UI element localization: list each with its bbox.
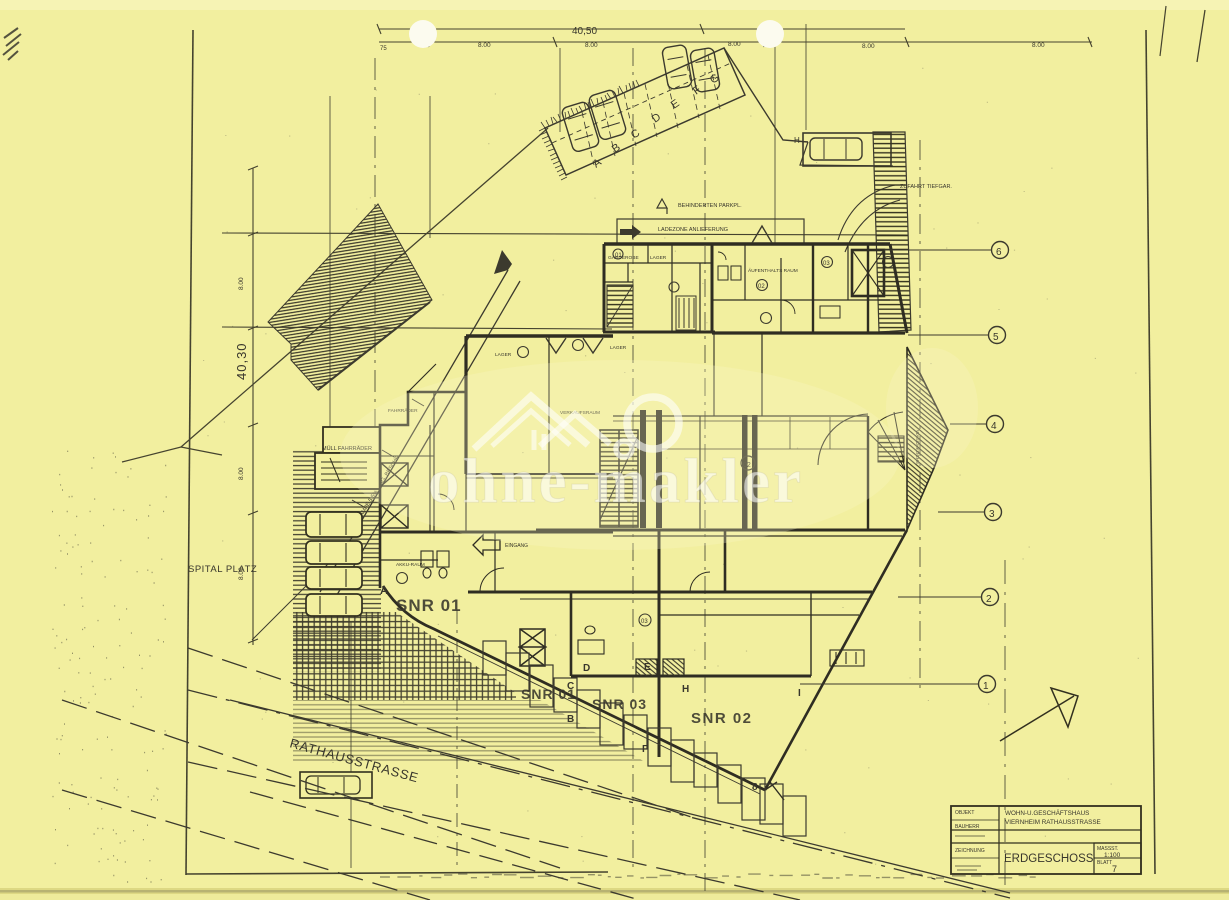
svg-text:SNR 02: SNR 02 [691, 710, 753, 727]
svg-text:8.00: 8.00 [1032, 42, 1045, 49]
svg-text:BLATT: BLATT [1097, 860, 1112, 866]
svg-text:I: I [798, 688, 801, 699]
svg-text:3: 3 [989, 509, 995, 520]
svg-text:E: E [644, 662, 651, 673]
svg-text:6: 6 [996, 247, 1002, 258]
svg-text:C: C [567, 681, 574, 692]
svg-text:7: 7 [1112, 864, 1117, 874]
svg-text:8.00: 8.00 [238, 277, 245, 290]
svg-text:ZUFAHRT TIEFGAR.: ZUFAHRT TIEFGAR. [900, 184, 952, 190]
svg-text:LAGER: LAGER [650, 255, 667, 261]
svg-text:8: 8 [752, 782, 758, 793]
svg-text:8.00: 8.00 [478, 42, 491, 49]
svg-text:02: 02 [758, 284, 765, 290]
svg-text:VIERNHEIM RATHAUSSTRASSE: VIERNHEIM RATHAUSSTRASSE [1005, 819, 1101, 826]
svg-text:40,30: 40,30 [234, 342, 249, 380]
svg-text:75: 75 [380, 46, 387, 52]
svg-text:A: A [380, 585, 388, 597]
svg-text:8.00: 8.00 [862, 43, 875, 50]
svg-text:SPITAL PLATZ: SPITAL PLATZ [188, 564, 257, 575]
svg-text:ZEICHNUNG: ZEICHNUNG [955, 848, 985, 854]
svg-text:03: 03 [823, 261, 830, 267]
svg-text:AKKU-RAUM: AKKU-RAUM [396, 562, 425, 568]
svg-text:D: D [583, 663, 590, 674]
svg-text:GARDEROBE: GARDEROBE [608, 255, 639, 261]
svg-text:LADEZONE ANLIEFERUNG: LADEZONE ANLIEFERUNG [658, 227, 728, 233]
svg-text:03: 03 [641, 619, 648, 625]
svg-text:OBJEKT: OBJEKT [955, 810, 974, 816]
svg-text:SNR 01: SNR 01 [396, 596, 462, 615]
svg-text:B: B [567, 714, 574, 725]
svg-text:2: 2 [986, 594, 992, 605]
svg-text:BAUHERR: BAUHERR [955, 824, 980, 830]
svg-text:LAGER: LAGER [495, 352, 512, 358]
svg-text:8.00: 8.00 [585, 42, 598, 49]
svg-text:H: H [794, 136, 800, 145]
svg-text:WOHN-U.GESCHÄFTSHAUS: WOHN-U.GESCHÄFTSHAUS [1005, 809, 1089, 817]
svg-text:SNR 03: SNR 03 [592, 696, 647, 712]
svg-text:ERDGESCHOSS: ERDGESCHOSS [1004, 853, 1094, 865]
svg-text:8.00: 8.00 [238, 467, 245, 480]
svg-text:40,50: 40,50 [572, 26, 597, 37]
svg-text:01: 01 [615, 253, 622, 259]
svg-text:F: F [642, 744, 648, 755]
svg-text:8.00: 8.00 [728, 41, 741, 48]
svg-text:5: 5 [993, 332, 999, 343]
svg-text:AUFENTHALTS RAUM: AUFENTHALTS RAUM [748, 268, 798, 274]
svg-text:H: H [682, 684, 689, 695]
svg-text:1: 1 [983, 681, 989, 692]
svg-text:1:100: 1:100 [1104, 852, 1121, 859]
svg-text:BEHINDERTEN PARKPL.: BEHINDERTEN PARKPL. [678, 203, 742, 209]
svg-text:4: 4 [991, 421, 997, 432]
svg-text:LAGER: LAGER [610, 345, 627, 351]
svg-text:ohne-makler: ohne-makler [428, 446, 804, 516]
